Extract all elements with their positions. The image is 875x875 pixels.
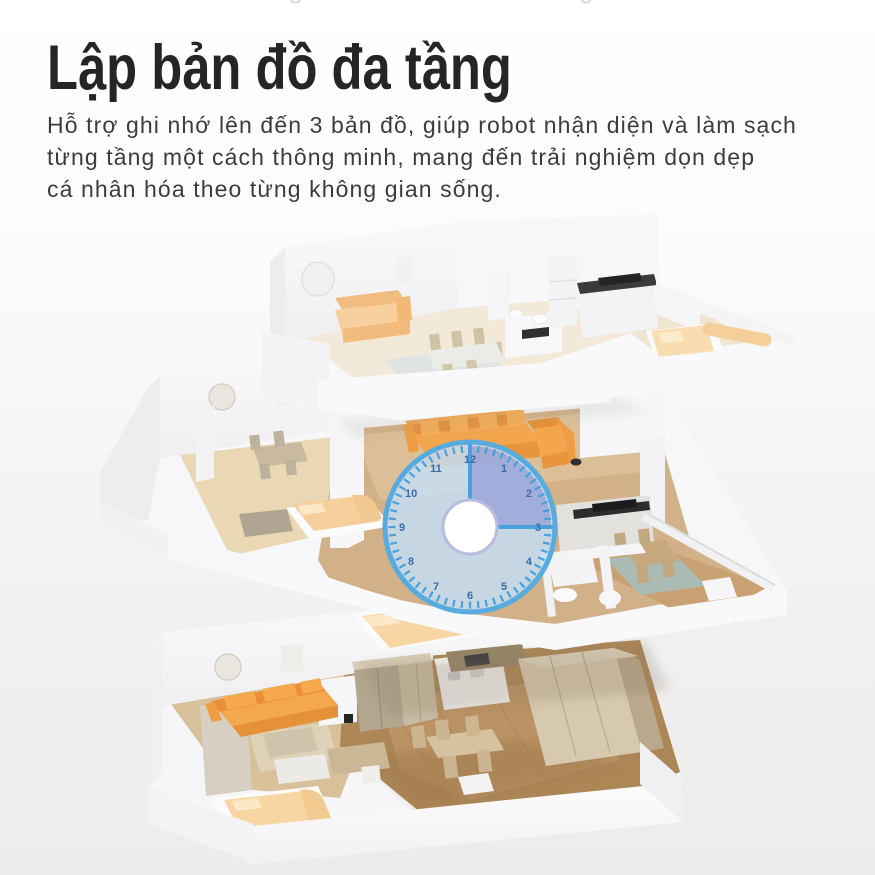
svg-text:9: 9 [399,522,405,534]
svg-text:6: 6 [467,590,473,602]
svg-text:3: 3 [535,522,541,534]
svg-text:7: 7 [433,581,439,593]
svg-text:8: 8 [408,556,414,568]
svg-text:4: 4 [526,556,533,568]
svg-text:11: 11 [430,463,442,475]
svg-text:1: 1 [501,463,507,475]
svg-text:10: 10 [405,488,417,500]
svg-text:2: 2 [526,488,532,500]
svg-text:5: 5 [501,581,507,593]
svg-text:12: 12 [464,454,476,466]
